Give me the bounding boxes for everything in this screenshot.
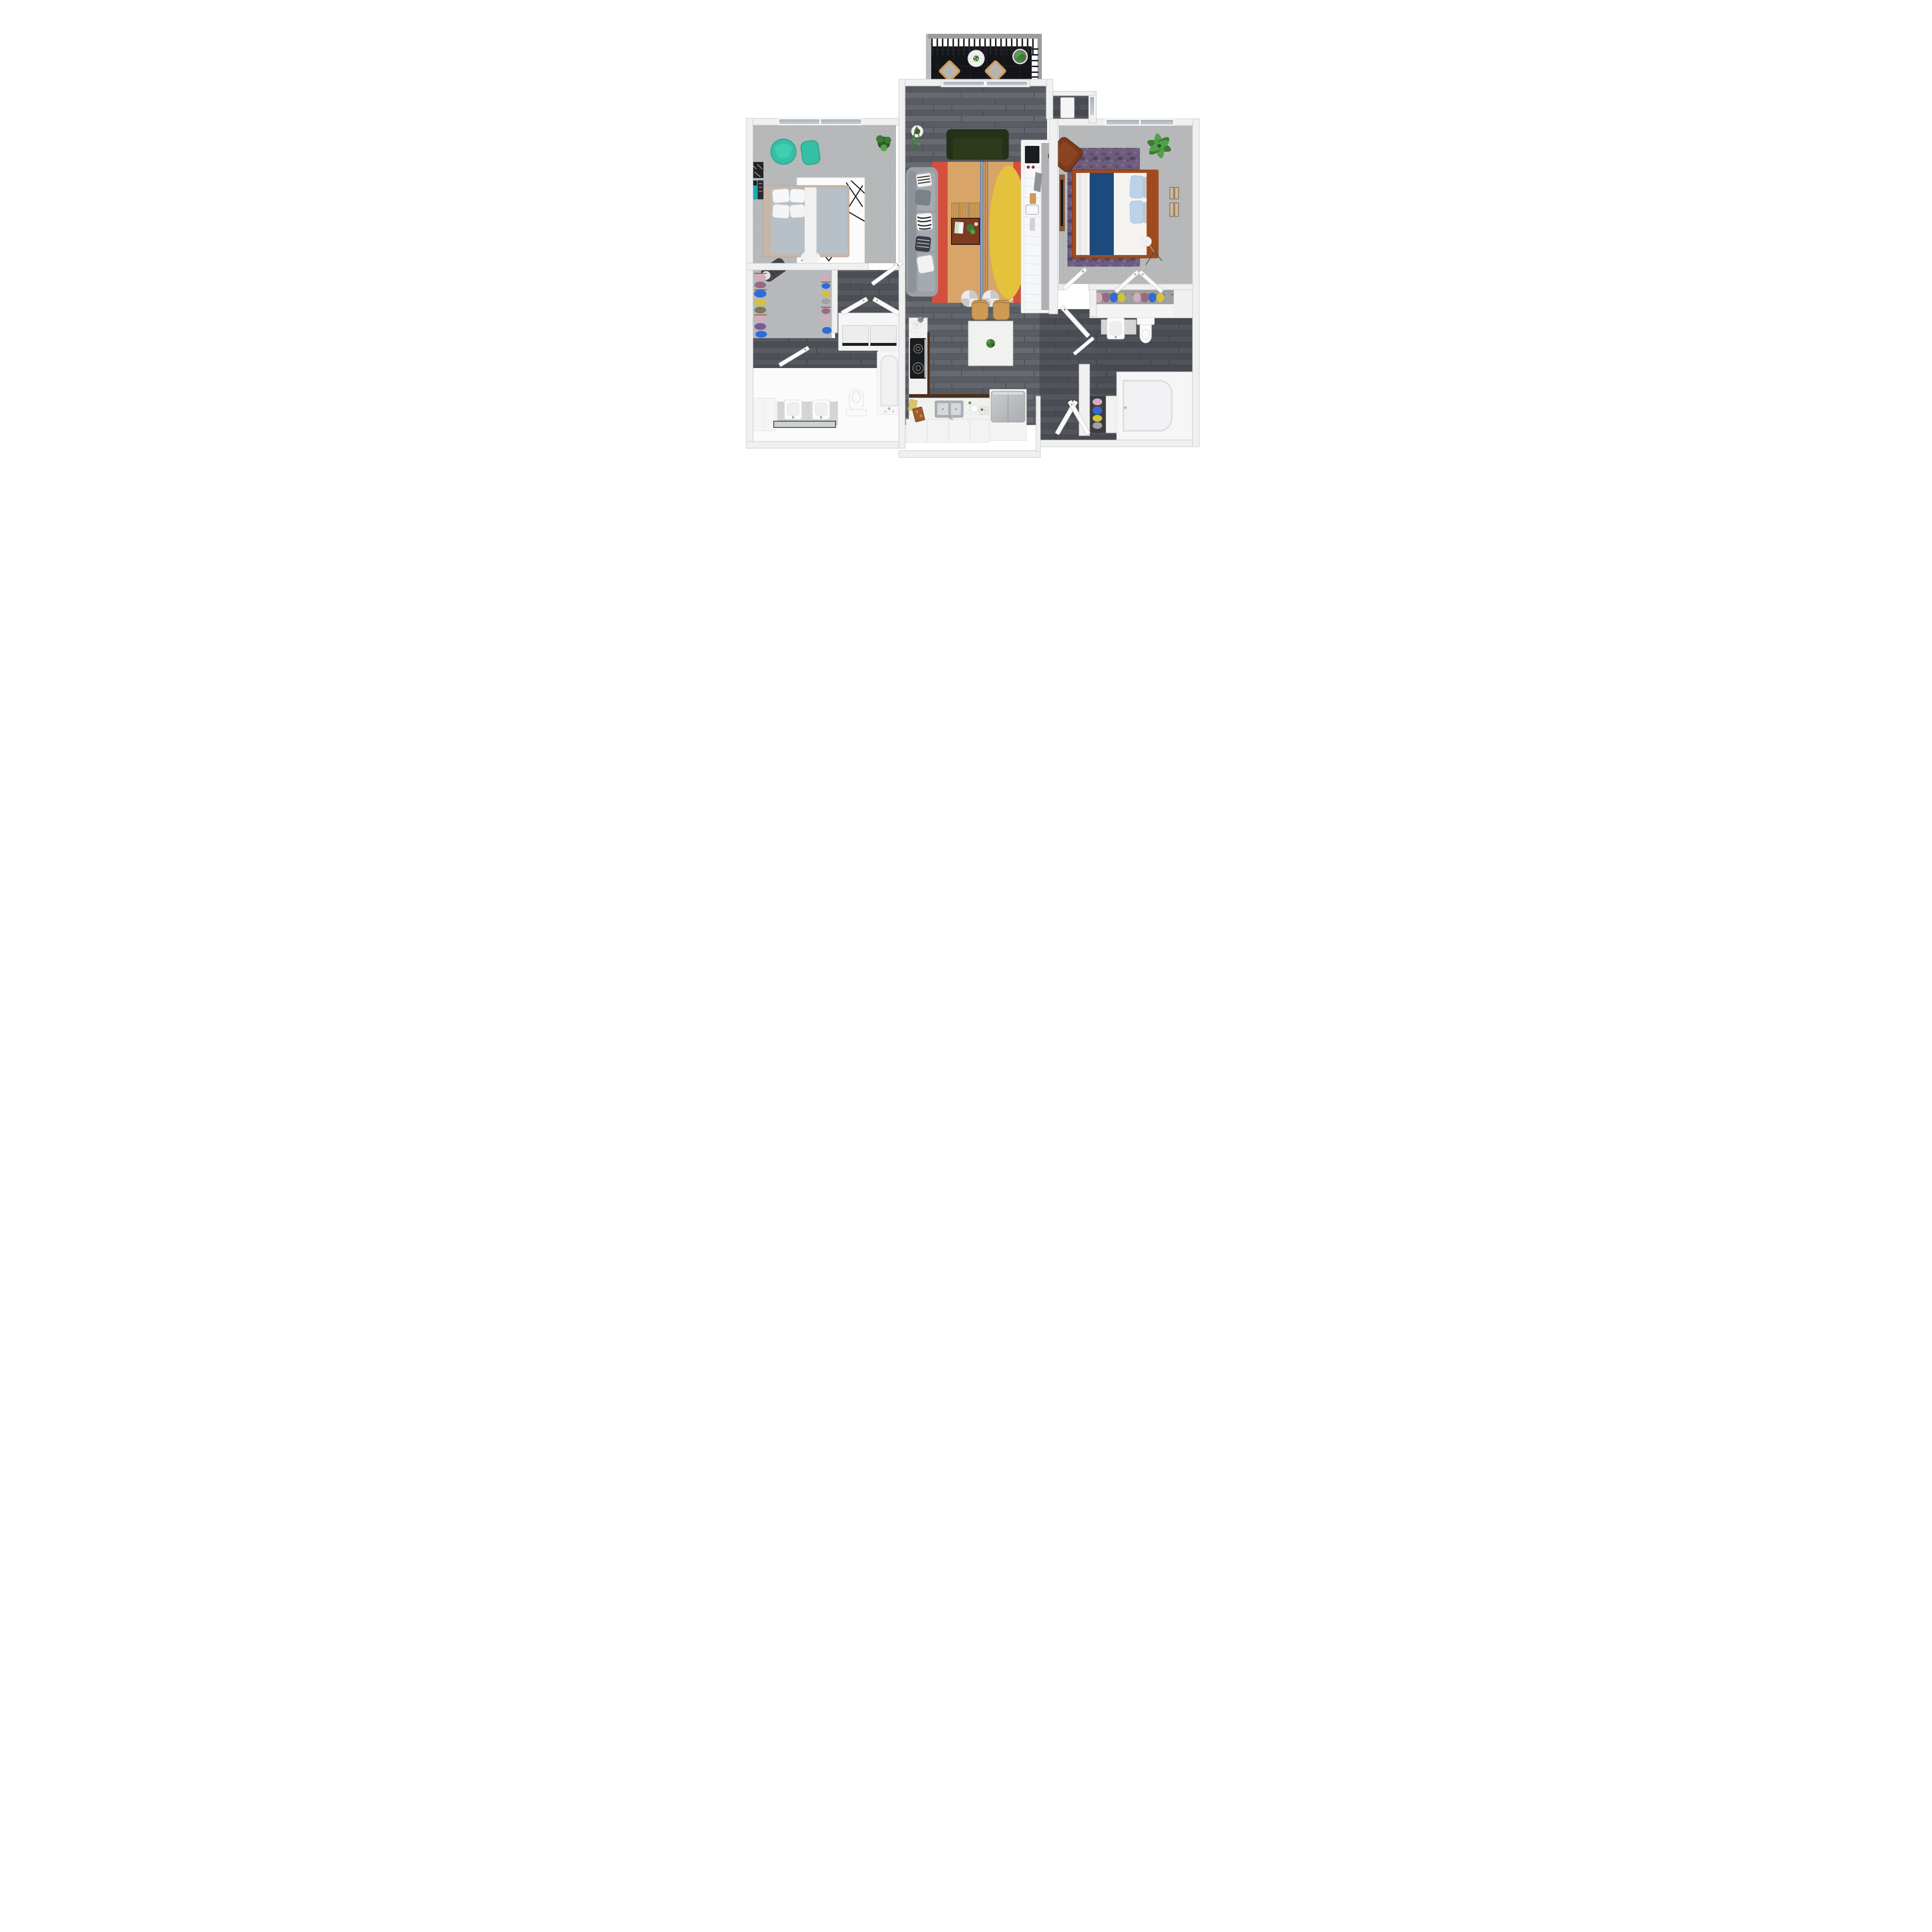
teal-ottoman [800, 140, 821, 166]
window [1106, 119, 1174, 125]
wall [1037, 440, 1199, 447]
bathtub [1117, 372, 1193, 440]
balcony-side-wall [926, 34, 931, 82]
utility-nook [1061, 98, 1074, 118]
laundry-closet [838, 313, 900, 351]
wall [899, 451, 1040, 457]
wall [1046, 79, 1053, 119]
stove-knob [1032, 166, 1035, 169]
faucet [1115, 336, 1117, 339]
kitchen-island [968, 321, 1013, 366]
wall [1089, 284, 1193, 290]
pillow [1130, 201, 1144, 224]
cooktop [1025, 146, 1039, 163]
pillow [790, 189, 805, 203]
sliding-glass-door [941, 80, 1030, 87]
faucet [792, 416, 795, 419]
gray-knit-pillow [915, 190, 931, 206]
bowl [974, 222, 978, 226]
stove [910, 338, 926, 379]
balcony-railing-right [1037, 34, 1042, 82]
kitchen-left-counter [909, 317, 930, 400]
entry-hall [1090, 396, 1117, 433]
vanity-sink [784, 400, 802, 419]
double-vanity [774, 400, 838, 427]
book [954, 222, 964, 233]
wall [1193, 119, 1199, 447]
wall [1049, 119, 1058, 314]
white-pillow [916, 255, 934, 273]
kitchen-bottom-counter [906, 394, 990, 442]
navy-runner [1090, 173, 1114, 255]
stove-knob [1027, 166, 1030, 169]
bed [763, 185, 849, 263]
pillow [772, 204, 790, 218]
mirror [774, 421, 836, 427]
herb-sprig [968, 401, 971, 404]
duvet-fold [805, 187, 816, 256]
tub-faucet [888, 407, 891, 410]
balcony-railing [928, 34, 1041, 39]
tv [1061, 180, 1063, 226]
cutting-board [1030, 193, 1036, 204]
pitcher [970, 405, 978, 412]
pillow [1130, 175, 1144, 198]
pillow [772, 189, 790, 203]
pillow [790, 204, 805, 218]
window [1090, 97, 1094, 116]
zebra-pillow [916, 213, 933, 230]
window [779, 119, 862, 125]
dryer [870, 326, 896, 346]
dark-striped-pillow [915, 236, 931, 252]
entry-coat-closet [1090, 396, 1117, 433]
double-sink [935, 401, 963, 419]
coffee-table [952, 203, 980, 244]
refrigerator [990, 389, 1026, 440]
balcony-potted-plant [1012, 49, 1028, 64]
washer [842, 326, 868, 346]
vanity-sink [812, 400, 830, 419]
tub-faucet [1124, 406, 1127, 409]
teal-armchair [771, 139, 796, 164]
gray-sofa [906, 167, 938, 297]
faucet [820, 416, 823, 419]
wall [746, 441, 903, 448]
wall [746, 263, 868, 270]
duvet-fold [1078, 173, 1082, 255]
wall [1036, 396, 1040, 452]
green-loveseat [947, 129, 1009, 159]
striped-pillow [916, 173, 932, 187]
closet-end-wall [1174, 289, 1193, 318]
bar-peninsula [1021, 140, 1051, 313]
tv-dresser [1060, 175, 1065, 231]
oven-handle [924, 339, 926, 378]
wall [1090, 290, 1096, 316]
wall [746, 118, 753, 448]
wall [1046, 91, 1094, 96]
bathtub [877, 351, 901, 414]
patio-table [968, 50, 984, 67]
utility-cabinet [1061, 98, 1074, 118]
floor-plan-3d [724, 0, 1207, 483]
wall [832, 270, 838, 333]
